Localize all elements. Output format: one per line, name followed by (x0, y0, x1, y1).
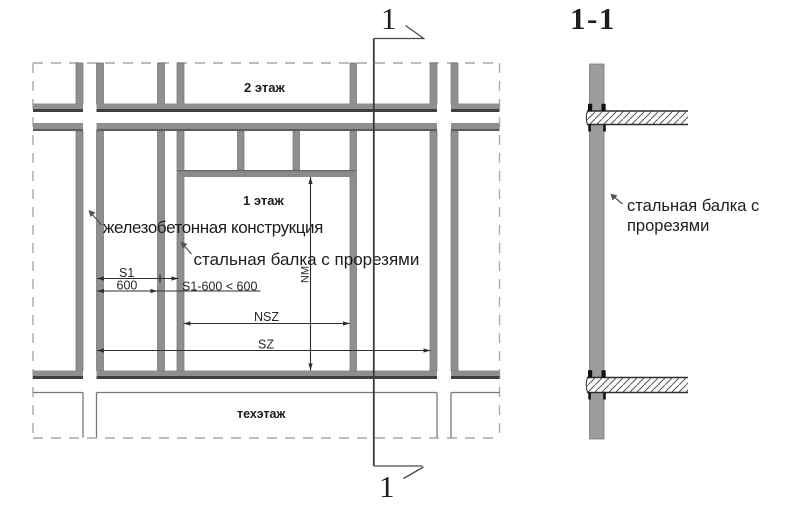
svg-text:NM: NM (300, 266, 312, 283)
svg-text:железобетонная конструкция: железобетонная конструкция (103, 218, 323, 237)
svg-text:S1-600 < 600: S1-600 < 600 (182, 280, 257, 294)
svg-text:NSZ: NSZ (254, 310, 279, 324)
svg-text:1-1: 1-1 (570, 1, 616, 36)
svg-text:1 этаж: 1 этаж (243, 193, 284, 208)
svg-text:техэтаж: техэтаж (237, 407, 286, 421)
svg-text:600: 600 (117, 279, 138, 293)
svg-text:SZ: SZ (258, 338, 274, 352)
svg-text:1: 1 (379, 469, 395, 504)
svg-text:стальная балка с: стальная балка с (627, 197, 759, 215)
svg-text:прорезями: прорезями (627, 217, 709, 235)
svg-text:1: 1 (381, 1, 397, 36)
svg-text:2 этаж: 2 этаж (244, 80, 285, 95)
